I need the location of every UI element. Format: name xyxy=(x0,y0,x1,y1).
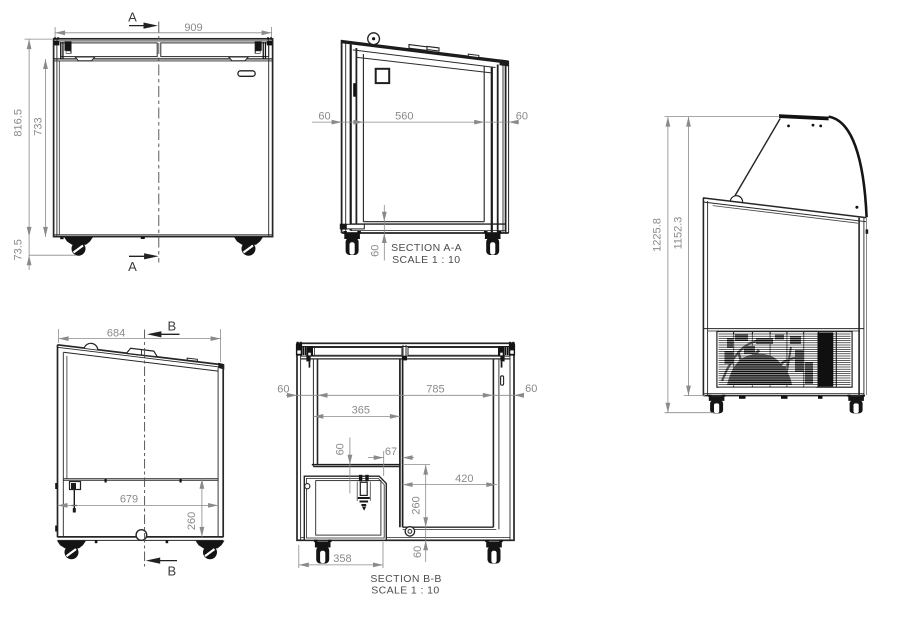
svg-text:358: 358 xyxy=(333,553,351,565)
svg-text:SCALE 1 : 10: SCALE 1 : 10 xyxy=(392,254,460,266)
svg-text:SCALE 1 : 10: SCALE 1 : 10 xyxy=(371,585,439,597)
svg-text:260: 260 xyxy=(410,496,422,514)
svg-text:60: 60 xyxy=(369,245,381,257)
svg-text:A: A xyxy=(128,259,137,274)
svg-text:785: 785 xyxy=(426,383,444,395)
svg-text:733: 733 xyxy=(33,117,45,135)
svg-text:1225.8: 1225.8 xyxy=(652,218,664,252)
svg-text:A: A xyxy=(128,10,137,25)
svg-text:SECTION A-A: SECTION A-A xyxy=(391,242,462,254)
svg-text:60: 60 xyxy=(525,383,537,395)
svg-text:60: 60 xyxy=(335,443,347,455)
svg-text:560: 560 xyxy=(395,110,413,122)
svg-text:60: 60 xyxy=(277,384,289,396)
svg-text:67: 67 xyxy=(385,446,397,458)
svg-text:909: 909 xyxy=(184,22,202,34)
svg-text:B: B xyxy=(167,563,176,578)
svg-text:679: 679 xyxy=(120,493,138,505)
svg-text:60: 60 xyxy=(516,111,528,123)
svg-text:260: 260 xyxy=(186,512,198,530)
svg-text:60: 60 xyxy=(412,546,424,558)
svg-text:1152.3: 1152.3 xyxy=(673,217,685,250)
svg-text:60: 60 xyxy=(318,110,330,122)
svg-text:73.5: 73.5 xyxy=(13,239,25,260)
svg-text:B: B xyxy=(167,319,176,334)
svg-text:816.5: 816.5 xyxy=(12,109,24,137)
svg-text:365: 365 xyxy=(352,405,370,417)
svg-text:SECTION B-B: SECTION B-B xyxy=(370,573,442,585)
svg-text:420: 420 xyxy=(455,473,473,485)
svg-text:684: 684 xyxy=(107,328,125,340)
